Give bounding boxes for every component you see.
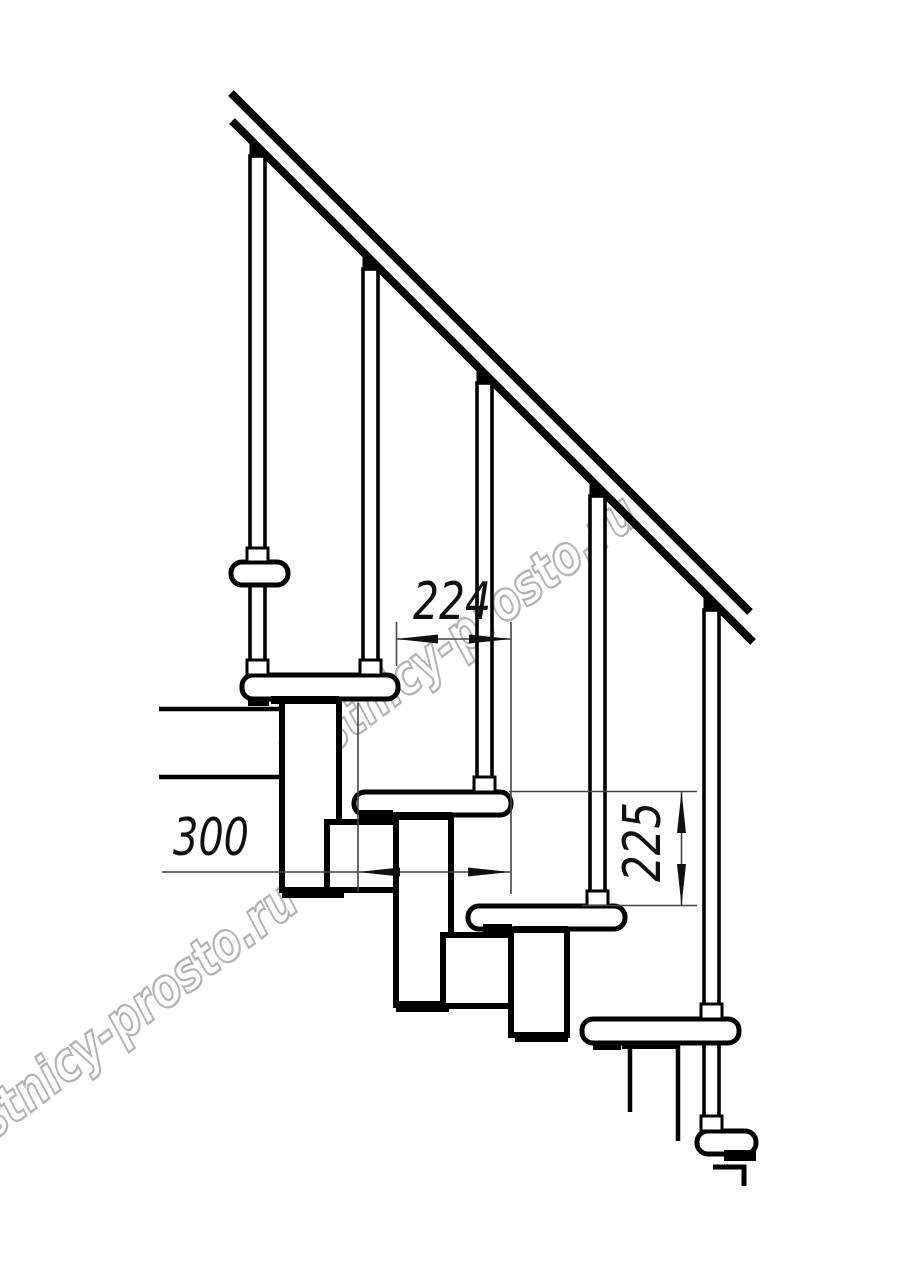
module-column: [511, 930, 567, 1035]
tread-end-view: [231, 562, 288, 585]
baluster: [704, 610, 719, 1132]
collar: [474, 777, 495, 792]
dimension-value-step-rise: 225: [613, 802, 673, 882]
support-pad: [271, 696, 339, 704]
baluster: [363, 269, 378, 677]
collar: [247, 660, 268, 675]
support-pad: [359, 810, 393, 819]
tread: [582, 1019, 739, 1043]
arrowhead-up: [677, 792, 686, 834]
floor-connection: [713, 1165, 746, 1186]
staircase-side-view: lestnicy-prosto.ru lestnicy-prosto.ru: [0, 0, 914, 1280]
support-pad: [622, 1042, 679, 1049]
baluster: [250, 156, 265, 677]
support-pad: [394, 812, 452, 819]
watermark-text-tile: lestnicy-prosto.ru: [0, 868, 309, 1177]
baluster: [590, 496, 605, 907]
tread: [242, 675, 398, 699]
technical-drawing-modular-staircase: lestnicy-prosto.ru lestnicy-prosto.ru: [0, 0, 914, 1280]
support-pad: [593, 1041, 621, 1050]
collar: [701, 1116, 722, 1131]
dimension-value-step-run: 224: [413, 572, 491, 632]
support-pad: [724, 1150, 756, 1161]
collar: [247, 548, 268, 562]
module-base-plate: [515, 1032, 568, 1042]
support-pad: [248, 697, 269, 706]
arrowhead-down: [677, 864, 686, 906]
module-box: [443, 935, 518, 1006]
collar: [701, 1004, 722, 1019]
collar: [360, 660, 381, 675]
arrowhead-right: [468, 868, 510, 877]
support-pad: [513, 926, 568, 933]
dimension-value-tread-depth: 300: [173, 808, 249, 868]
collar: [587, 891, 608, 906]
support-pad: [483, 924, 512, 933]
